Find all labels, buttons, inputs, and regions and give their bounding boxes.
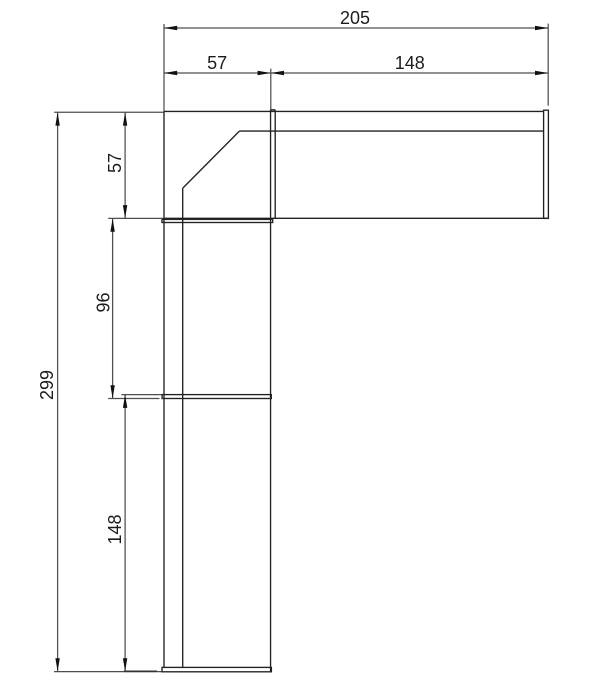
svg-text:148: 148 bbox=[105, 514, 125, 544]
svg-text:96: 96 bbox=[93, 292, 113, 312]
svg-text:148: 148 bbox=[395, 53, 425, 73]
svg-text:205: 205 bbox=[340, 8, 370, 28]
svg-text:57: 57 bbox=[207, 53, 227, 73]
svg-text:299: 299 bbox=[37, 370, 57, 400]
svg-text:57: 57 bbox=[105, 153, 125, 173]
